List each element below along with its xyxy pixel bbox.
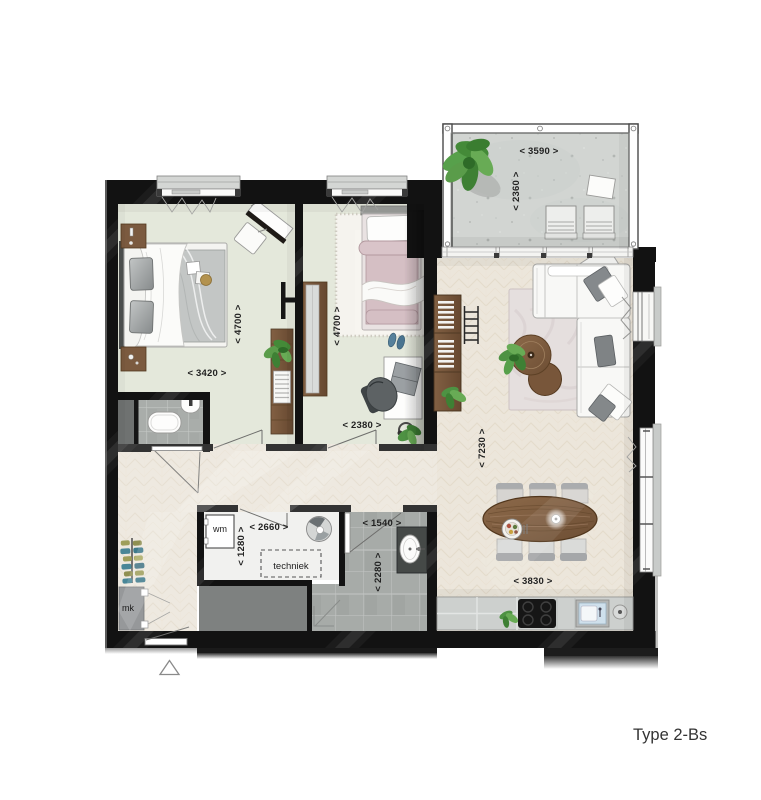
svg-text:mk: mk xyxy=(122,603,134,613)
svg-text:< 2360 >: < 2360 > xyxy=(511,171,522,210)
svg-text:wm: wm xyxy=(212,524,227,534)
svg-text:Type 2-Bs: Type 2-Bs xyxy=(633,726,707,744)
svg-text:< 3420 >: < 3420 > xyxy=(187,368,226,379)
svg-text:< 4700 >: < 4700 > xyxy=(332,306,343,345)
svg-text:< 2380 >: < 2380 > xyxy=(342,420,381,431)
svg-text:< 4700 >: < 4700 > xyxy=(233,304,244,343)
svg-text:< 2660 >: < 2660 > xyxy=(249,522,288,533)
svg-text:< 1280 >: < 1280 > xyxy=(236,526,247,565)
svg-text:< 1540 >: < 1540 > xyxy=(362,518,401,529)
svg-text:techniek: techniek xyxy=(273,561,309,572)
svg-text:< 3830 >: < 3830 > xyxy=(513,576,552,587)
svg-text:< 3590 >: < 3590 > xyxy=(519,146,558,157)
svg-text:< 2280 >: < 2280 > xyxy=(373,552,384,591)
svg-text:< 7230 >: < 7230 > xyxy=(477,428,488,467)
